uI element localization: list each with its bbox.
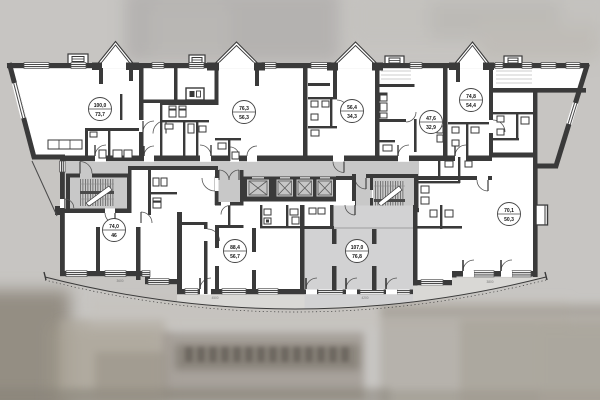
- svg-text:56,4: 56,4: [347, 105, 357, 111]
- svg-text:107,0: 107,0: [351, 245, 364, 251]
- svg-text:73,7: 73,7: [95, 112, 105, 118]
- svg-text:34,3: 34,3: [347, 114, 357, 120]
- svg-text:47,6: 47,6: [426, 116, 436, 122]
- svg-text:3600: 3600: [116, 279, 123, 283]
- svg-text:56,3: 56,3: [239, 115, 249, 121]
- svg-text:74,8: 74,8: [466, 94, 476, 100]
- svg-text:54,4: 54,4: [466, 103, 476, 109]
- svg-text:70,1: 70,1: [504, 208, 514, 214]
- svg-text:50,3: 50,3: [504, 217, 514, 223]
- svg-text:56,7: 56,7: [230, 254, 240, 260]
- svg-text:76,8: 76,8: [352, 254, 362, 260]
- svg-text:74,0: 74,0: [109, 224, 119, 230]
- svg-text:46: 46: [111, 233, 117, 239]
- svg-text:4500: 4500: [211, 296, 218, 300]
- svg-text:4200: 4200: [361, 296, 368, 300]
- svg-text:32,9: 32,9: [426, 125, 436, 131]
- svg-text:76,3: 76,3: [239, 106, 249, 112]
- svg-text:100,0: 100,0: [94, 103, 107, 109]
- svg-text:3800: 3800: [486, 280, 493, 284]
- svg-text:88,4: 88,4: [230, 245, 240, 251]
